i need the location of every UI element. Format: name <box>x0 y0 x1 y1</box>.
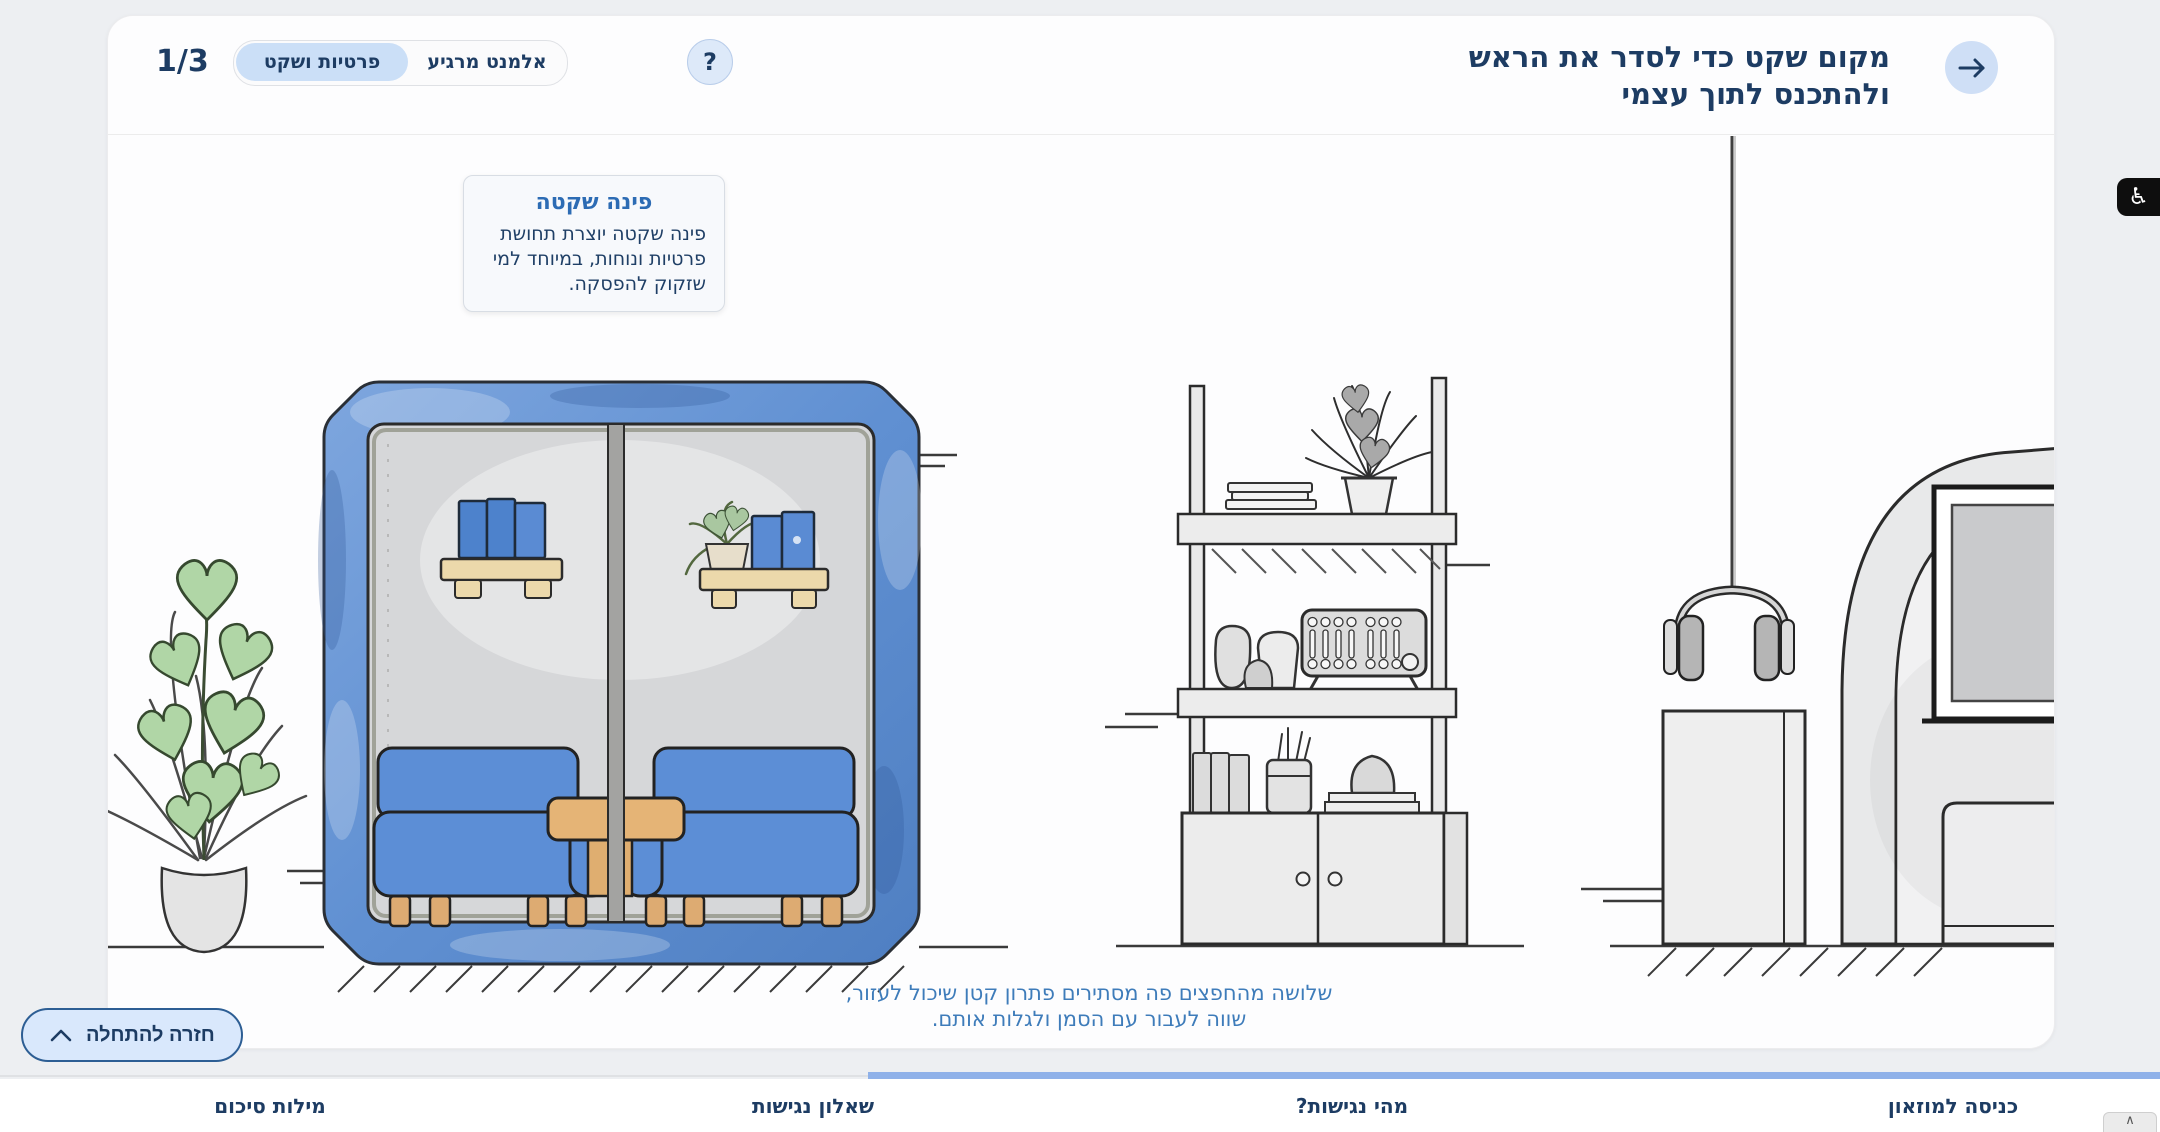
top-shelf <box>1178 514 1456 544</box>
toggle-option-calming-element[interactable]: אלמנט מרגיע <box>412 43 562 81</box>
next-button[interactable] <box>1945 41 1998 94</box>
hint-caption-line1: שלושה מהחפצים פה מסתירים פתרון קטן שיכול… <box>846 980 1333 1006</box>
chevron-up-small-icon: ∧ <box>2125 1113 2135 1128</box>
back-to-start-label: חזרה להתחלה <box>86 1024 215 1047</box>
doorway-arch <box>1842 448 2055 944</box>
layer-toggle[interactable]: פרטיות ושקט אלמנט מרגיע <box>233 40 568 86</box>
shelving-unit[interactable] <box>1178 378 1467 944</box>
hotspot-tooltip: פינה שקטה פינה שקטה יוצרת תחושת פרטיות ו… <box>463 175 725 312</box>
main-card <box>107 15 2055 1049</box>
scene-illustration <box>107 15 2055 1049</box>
arrow-right-icon <box>1955 54 1989 82</box>
pencil-cup <box>1267 728 1311 813</box>
tooltip-body: פינה שקטה יוצרת תחושת פרטיות ונוחות, במי… <box>482 222 706 297</box>
booth-floor-hatching <box>338 966 904 992</box>
booth-divider <box>608 424 624 922</box>
scroll-to-top-button[interactable]: ∧ <box>2103 1112 2157 1132</box>
pedestal-cabinet <box>1663 711 1805 944</box>
white-noise-radio[interactable] <box>1302 610 1426 690</box>
hint-caption-line2: שווה לעבור עם הסמן ולגלות אותם. <box>846 1006 1333 1032</box>
progress-filled <box>868 1072 2160 1079</box>
bottom-navigation: כניסה למוזאון מהי נגישות? שאלון נגישות מ… <box>0 1079 2160 1132</box>
nav-item-museum-entrance[interactable]: כניסה למוזאון <box>1888 1094 2018 1118</box>
tooltip-title: פינה שקטה <box>482 190 706 215</box>
floor-plant <box>107 561 306 952</box>
accessibility-widget-button[interactable]: ♿ <box>2117 178 2160 216</box>
hint-caption: שלושה מהחפצים פה מסתירים פתרון קטן שיכול… <box>846 980 1333 1032</box>
nav-item-what-is-accessibility[interactable]: מהי נגישות? <box>1296 1094 1408 1118</box>
right-floor-hatching <box>1648 948 1942 976</box>
book-stack-top <box>1226 483 1316 509</box>
question-mark-icon: ? <box>703 48 717 76</box>
cabinet <box>1182 813 1467 944</box>
page: 1/3 פרטיות ושקט אלמנט מרגיע ? מקום שקט כ… <box>0 0 2160 1132</box>
page-title-line2: ולהתכנס לתוך עצמי <box>1469 76 1890 113</box>
vases <box>1215 626 1298 688</box>
accessibility-icon: ♿ <box>2128 184 2149 210</box>
page-title: מקום שקט כדי לסדר את הראש ולהתכנס לתוך ע… <box>1469 39 1890 113</box>
window <box>1922 487 2055 721</box>
nav-item-summary-words[interactable]: מילות סיכום <box>214 1094 326 1118</box>
quiet-booth[interactable] <box>318 382 922 964</box>
plant-pot <box>162 868 247 952</box>
progress-bar <box>0 1072 2160 1079</box>
books-with-stone <box>1325 756 1419 813</box>
progress-remaining <box>0 1075 868 1077</box>
middle-shelf <box>1178 689 1456 717</box>
help-button[interactable]: ? <box>687 39 733 85</box>
shelf-plant <box>1306 384 1432 514</box>
page-title-line1: מקום שקט כדי לסדר את הראש <box>1469 39 1890 76</box>
hanging-headphones[interactable] <box>1664 136 1794 680</box>
back-to-start-button[interactable]: חזרה להתחלה <box>21 1008 243 1062</box>
standing-books <box>1193 753 1249 813</box>
chevron-up-icon <box>49 1028 73 1043</box>
step-counter: 1/3 <box>156 44 209 79</box>
bench <box>1943 803 2055 944</box>
nav-item-accessibility-questionnaire[interactable]: שאלון נגישות <box>752 1094 874 1118</box>
toggle-option-privacy-quiet[interactable]: פרטיות ושקט <box>236 43 408 81</box>
